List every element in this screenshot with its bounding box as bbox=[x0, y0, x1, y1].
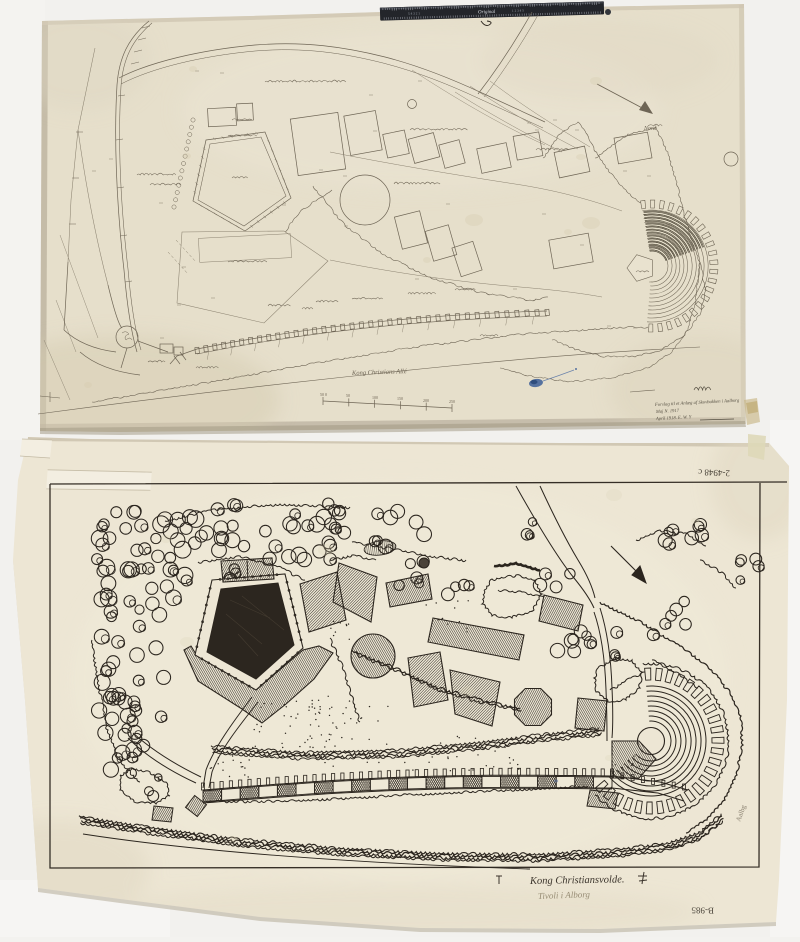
svg-text:Tivoli i Alborg: Tivoli i Alborg bbox=[538, 889, 591, 901]
svg-text:100: 100 bbox=[372, 395, 378, 400]
svg-text:50: 50 bbox=[346, 393, 350, 398]
svg-text:5 4 3 2 1: 5 4 3 2 1 bbox=[408, 11, 420, 15]
svg-text:Original: Original bbox=[478, 10, 496, 15]
svg-text:1 2 3 4 5: 1 2 3 4 5 bbox=[512, 9, 524, 13]
svg-text:250: 250 bbox=[449, 399, 455, 404]
svg-text:Kong Christiansvolde.: Kong Christiansvolde. bbox=[529, 874, 625, 887]
svg-text:200: 200 bbox=[423, 398, 429, 403]
svg-text:50 0: 50 0 bbox=[320, 392, 327, 397]
svg-text:B-985: B-985 bbox=[691, 905, 714, 915]
svg-text:150: 150 bbox=[397, 396, 403, 401]
svg-text:2-4948 c: 2-4948 c bbox=[698, 467, 730, 478]
